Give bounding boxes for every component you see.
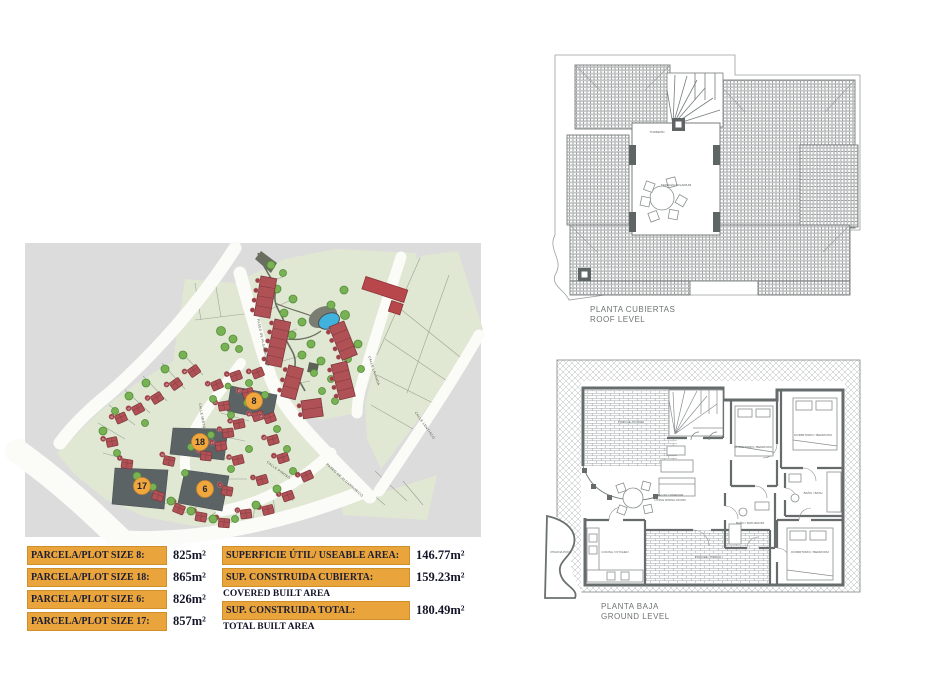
sink <box>789 474 801 482</box>
tree <box>340 286 348 294</box>
built-area-label: SUP. CONSTRUIDA TOTAL: <box>222 601 410 620</box>
tree <box>142 379 150 387</box>
built-area-value: 146.77m² <box>410 546 465 565</box>
tree <box>298 351 306 359</box>
tree <box>125 392 133 400</box>
tree <box>232 516 239 523</box>
tree <box>228 466 235 473</box>
tree <box>228 412 235 419</box>
plot-number: 18 <box>195 437 205 447</box>
tree <box>99 427 107 435</box>
tree <box>217 327 226 336</box>
porch-front <box>585 390 677 466</box>
roof-plan-title: PLANTA CUBIERTAS <box>590 305 675 315</box>
tree <box>319 388 326 395</box>
plot-size-value: 865m² <box>167 568 206 587</box>
tree <box>236 346 243 353</box>
tree <box>246 446 253 453</box>
built-area-row: SUP. CONSTRUIDA CUBIERTA:159.23m² <box>222 568 465 587</box>
built-area-value: 159.23m² <box>410 568 465 587</box>
tree <box>267 261 275 269</box>
room-label: SALON COMEDOR <box>657 493 685 497</box>
tree <box>182 470 189 477</box>
room-label: DORMITORIO / BEDROOM <box>794 433 832 437</box>
room-label: LIVING DINING ROOM <box>654 498 686 502</box>
plot-size-label: PARCELA/PLOT SIZE 8: <box>27 546 167 565</box>
built-area-row: SUPERFICIE ÚTIL/ USEABLE AREA:146.77m² <box>222 546 465 565</box>
roof-label: TERRAZA SOLARIUM <box>661 183 692 187</box>
plot-size-value: 826m² <box>167 590 206 609</box>
ground-stairs <box>669 390 723 440</box>
room-label: BAÑO / BATH <box>804 490 823 495</box>
room-label: BAÑO / BATHROOM <box>736 520 765 525</box>
built-area-value: 180.49m² <box>410 601 465 620</box>
ground-plan-caption: PLANTA BAJA GROUND LEVEL <box>601 602 670 623</box>
built-area-sublabel: TOTAL BUILT AREA <box>223 622 465 632</box>
coffee-table <box>667 446 685 455</box>
plot-number: 17 <box>137 481 147 491</box>
plot-size-row: PARCELA/PLOT SIZE 6:826m² <box>27 590 206 609</box>
ground-plan-title: PLANTA BAJA <box>601 602 670 612</box>
tree <box>311 370 318 377</box>
sofa <box>661 460 693 472</box>
sink <box>755 502 769 510</box>
tree <box>167 497 175 505</box>
tree <box>284 446 291 453</box>
tree <box>290 468 297 475</box>
tree <box>327 301 335 309</box>
tree <box>246 380 253 387</box>
tree <box>221 343 229 351</box>
plot-size-table: PARCELA/PLOT SIZE 8:825m²PARCELA/PLOT SI… <box>27 546 206 634</box>
plot-size-label: PARCELA/PLOT SIZE 18: <box>27 568 167 587</box>
room-label: DORMITORIO / BEDROOM <box>734 445 772 449</box>
tree <box>274 426 281 433</box>
tree <box>280 309 288 317</box>
tree <box>161 365 169 373</box>
roof-plan: TORREÓNTERRAZA SOLARIUM <box>545 50 875 312</box>
plot-size-label: PARCELA/PLOT SIZE 6: <box>27 590 167 609</box>
tree <box>225 383 231 389</box>
tree <box>307 340 315 348</box>
tree <box>179 351 187 359</box>
tree <box>273 485 281 493</box>
plot-size-value: 825m² <box>167 546 206 565</box>
tree <box>112 408 119 415</box>
room-label: COCINA / KITCHEN <box>601 550 628 554</box>
built-area-row: SUP. CONSTRUIDA TOTAL:180.49m² <box>222 601 465 620</box>
tree <box>114 450 121 457</box>
tree <box>341 311 350 320</box>
plot-size-row: PARCELA/PLOT SIZE 18:865m² <box>27 568 206 587</box>
plot-size-value: 857m² <box>167 612 206 631</box>
tree <box>358 366 365 373</box>
tree <box>209 515 217 523</box>
built-area-sublabel: COVERED BUILT AREA <box>223 589 465 599</box>
roof-plan-caption: PLANTA CUBIERTAS ROOF LEVEL <box>590 305 675 326</box>
shower <box>729 524 741 544</box>
tree <box>280 270 287 277</box>
tree <box>289 295 297 303</box>
toilet <box>791 494 799 502</box>
room-label: PORCHE / PORCH <box>618 420 644 424</box>
tree <box>262 392 269 399</box>
tree <box>252 501 260 509</box>
tree <box>288 331 296 339</box>
plot-number: 8 <box>251 396 256 406</box>
ground-plan-subtitle: GROUND LEVEL <box>601 612 670 622</box>
room-label: PORCHE / PORCH <box>695 555 721 559</box>
shower <box>827 472 841 512</box>
brochure-page: 2625242322215610119277321191316181215142… <box>0 0 935 682</box>
tree <box>187 507 195 515</box>
roof-label: TORREÓN <box>650 129 665 134</box>
plot-number: 6 <box>202 484 207 494</box>
bed <box>793 398 837 450</box>
tree <box>229 335 237 343</box>
plot-size-row: PARCELA/PLOT SIZE 8:825m² <box>27 546 206 565</box>
bed <box>787 528 833 580</box>
plot-size-row: PARCELA/PLOT SIZE 17:857m² <box>27 612 206 631</box>
tree <box>210 396 217 403</box>
room-label: DORMITORIO / BEDROOM <box>791 550 829 554</box>
tree <box>208 432 215 439</box>
plot-size-label: PARCELA/PLOT SIZE 17: <box>27 612 167 631</box>
ground-plan: PORCHE / PORCHSALON COMEDORLIVING DINING… <box>545 348 875 600</box>
roof-plan-subtitle: ROOF LEVEL <box>590 315 675 325</box>
tree <box>332 398 339 405</box>
tree <box>142 420 149 427</box>
toilet <box>739 508 747 516</box>
room-label: PISCINA POOL <box>550 550 571 554</box>
built-area-table: SUPERFICIE ÚTIL/ USEABLE AREA:146.77m²SU… <box>222 546 465 634</box>
built-area-label: SUPERFICIE ÚTIL/ USEABLE AREA: <box>222 546 410 565</box>
tree <box>317 357 325 365</box>
built-area-label: SUP. CONSTRUIDA CUBIERTA: <box>222 568 410 587</box>
tree <box>298 318 306 326</box>
tree <box>354 340 362 348</box>
site-map: 2625242322215610119277321191316181215142… <box>25 243 481 537</box>
dining-table <box>623 488 643 508</box>
